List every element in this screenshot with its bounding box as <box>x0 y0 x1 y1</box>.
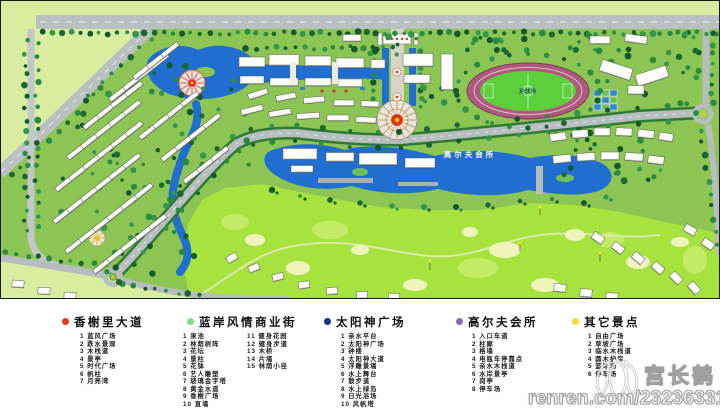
legend-item: 7 岗亭 <box>472 378 523 386</box>
legend-group-title: 其它景点 <box>584 317 640 329</box>
legend-item: 14 片墙 <box>247 356 288 364</box>
legend-item: 1 自由广场 <box>588 333 632 341</box>
legend-item: 2 太阳神广场 <box>341 341 385 349</box>
site-plan-svg: 足球场 <box>0 0 720 299</box>
legend-dot-icon <box>62 318 69 325</box>
legend-group-title: 太阳神广场 <box>336 317 406 329</box>
legend-item-list: 1 泉池2 林荫树阵3 花坛4 景柱5 花钵6 艺人雕塑7 玻璃金字塔8 黄金水… <box>183 333 227 408</box>
legend-item: 2 跌水景观 <box>80 341 116 349</box>
legend-item: 3 临水木栈道 <box>588 348 632 356</box>
legend-group-title: 蓝岸风情商业街 <box>199 317 297 329</box>
golf-club-label: 高尔夫会所 <box>444 149 497 159</box>
legend-item: 3 格墙 <box>472 348 523 356</box>
west-round-plaza <box>179 70 205 96</box>
legend-item: 5 浮雕景墙 <box>341 363 385 371</box>
legend-item: 2 林荫树阵 <box>183 341 227 349</box>
legend-item: 1 亲水平台 <box>341 333 385 341</box>
legend-item: 3 钟楼 <box>341 348 385 356</box>
legend-item: 5 花钵 <box>183 363 227 371</box>
legend-item: 6 水岸景亭 <box>472 371 523 379</box>
legend-item: 6 艺人雕塑 <box>183 371 227 379</box>
legend-item-list: 11 健身花园12 健身步道13 木桥14 片墙15 林荫小径 <box>247 333 288 371</box>
watermark-author: 宫长鹤 <box>644 360 716 390</box>
legend-item: 3 花坛 <box>183 348 227 356</box>
legend-group-header: 其它景点 <box>572 314 640 330</box>
legend-item: 4 景亭 <box>80 356 116 364</box>
legend-item: 4 电瓶车停靠点 <box>472 356 523 364</box>
legend-dot-icon <box>572 318 579 325</box>
legend-item: 6 水上舞台 <box>341 371 385 379</box>
watermark-url: renren.com/232363316 <box>528 387 720 410</box>
legend-item: 8 黄金水道 <box>183 386 227 394</box>
legend-dot-icon <box>324 318 331 325</box>
legend-item: 1 蓝风广场 <box>80 333 116 341</box>
legend-group-title: 香榭里大道 <box>74 317 144 329</box>
legend-item: 10 直墙 <box>183 401 227 409</box>
legend-item: 8 停车场 <box>472 386 523 394</box>
legend-item: 10 风帆塔 <box>341 401 385 409</box>
legend-item: 13 木桥 <box>247 348 288 356</box>
legend-item: 6 帆柱 <box>80 371 116 379</box>
legend-item: 12 健身步道 <box>247 341 288 349</box>
legend-item-list: 1 蓝风广场2 跌水景观3 木栈道4 景亭5 时代广场6 帆柱7 月亮湾 <box>80 333 116 386</box>
legend-item: 5 亲水木栈道 <box>472 363 523 371</box>
legend-dot-icon <box>456 318 463 325</box>
stadium-label: 足球场 <box>519 88 537 95</box>
legend-item: 1 泉池 <box>183 333 227 341</box>
stadium: 足球场 <box>467 63 589 119</box>
legend-group-header: 太阳神广场 <box>324 314 406 330</box>
legend-dot-icon <box>187 318 194 325</box>
screenshot: 足球场 <box>0 0 720 413</box>
legend-group-header: 香榭里大道 <box>62 314 144 330</box>
legend-group-title: 高尔夫会所 <box>468 317 538 329</box>
legend-item: 9 日光浴场 <box>341 393 385 401</box>
legend-item: 5 时代广场 <box>80 363 116 371</box>
legend-item: 2 草坡广场 <box>588 341 632 349</box>
legend-group-header: 蓝岸风情商业街 <box>187 314 297 330</box>
legend-item: 7 玻璃金字塔 <box>183 378 227 386</box>
legend-item: 4 景柱 <box>183 356 227 364</box>
legend-item: 7 月亮湾 <box>80 378 116 386</box>
legend-item: 7 散步道 <box>341 378 385 386</box>
legend-item-list: 1 入口车道2 柱廊3 格墙4 电瓶车停靠点5 亲水木栈道6 水岸景亭7 岗亭8… <box>472 333 523 393</box>
site-plan-map: 足球场 <box>0 0 720 299</box>
legend-item: 4 太阳神大道 <box>341 356 385 364</box>
legend-item: 1 入口车道 <box>472 333 523 341</box>
legend-group-header: 高尔夫会所 <box>456 314 538 330</box>
legend-item: 15 林荫小径 <box>247 363 288 371</box>
legend-item: 2 柱廊 <box>472 341 523 349</box>
legend-item: 8 水上绿岛 <box>341 386 385 394</box>
legend-item-list: 1 亲水平台2 太阳神广场3 钟楼4 太阳神大道5 浮雕景墙6 水上舞台7 散步… <box>341 333 385 408</box>
legend-item: 9 香榭广场 <box>183 393 227 401</box>
legend-item: 3 木栈道 <box>80 348 116 356</box>
legend-item: 11 健身花园 <box>247 333 288 341</box>
